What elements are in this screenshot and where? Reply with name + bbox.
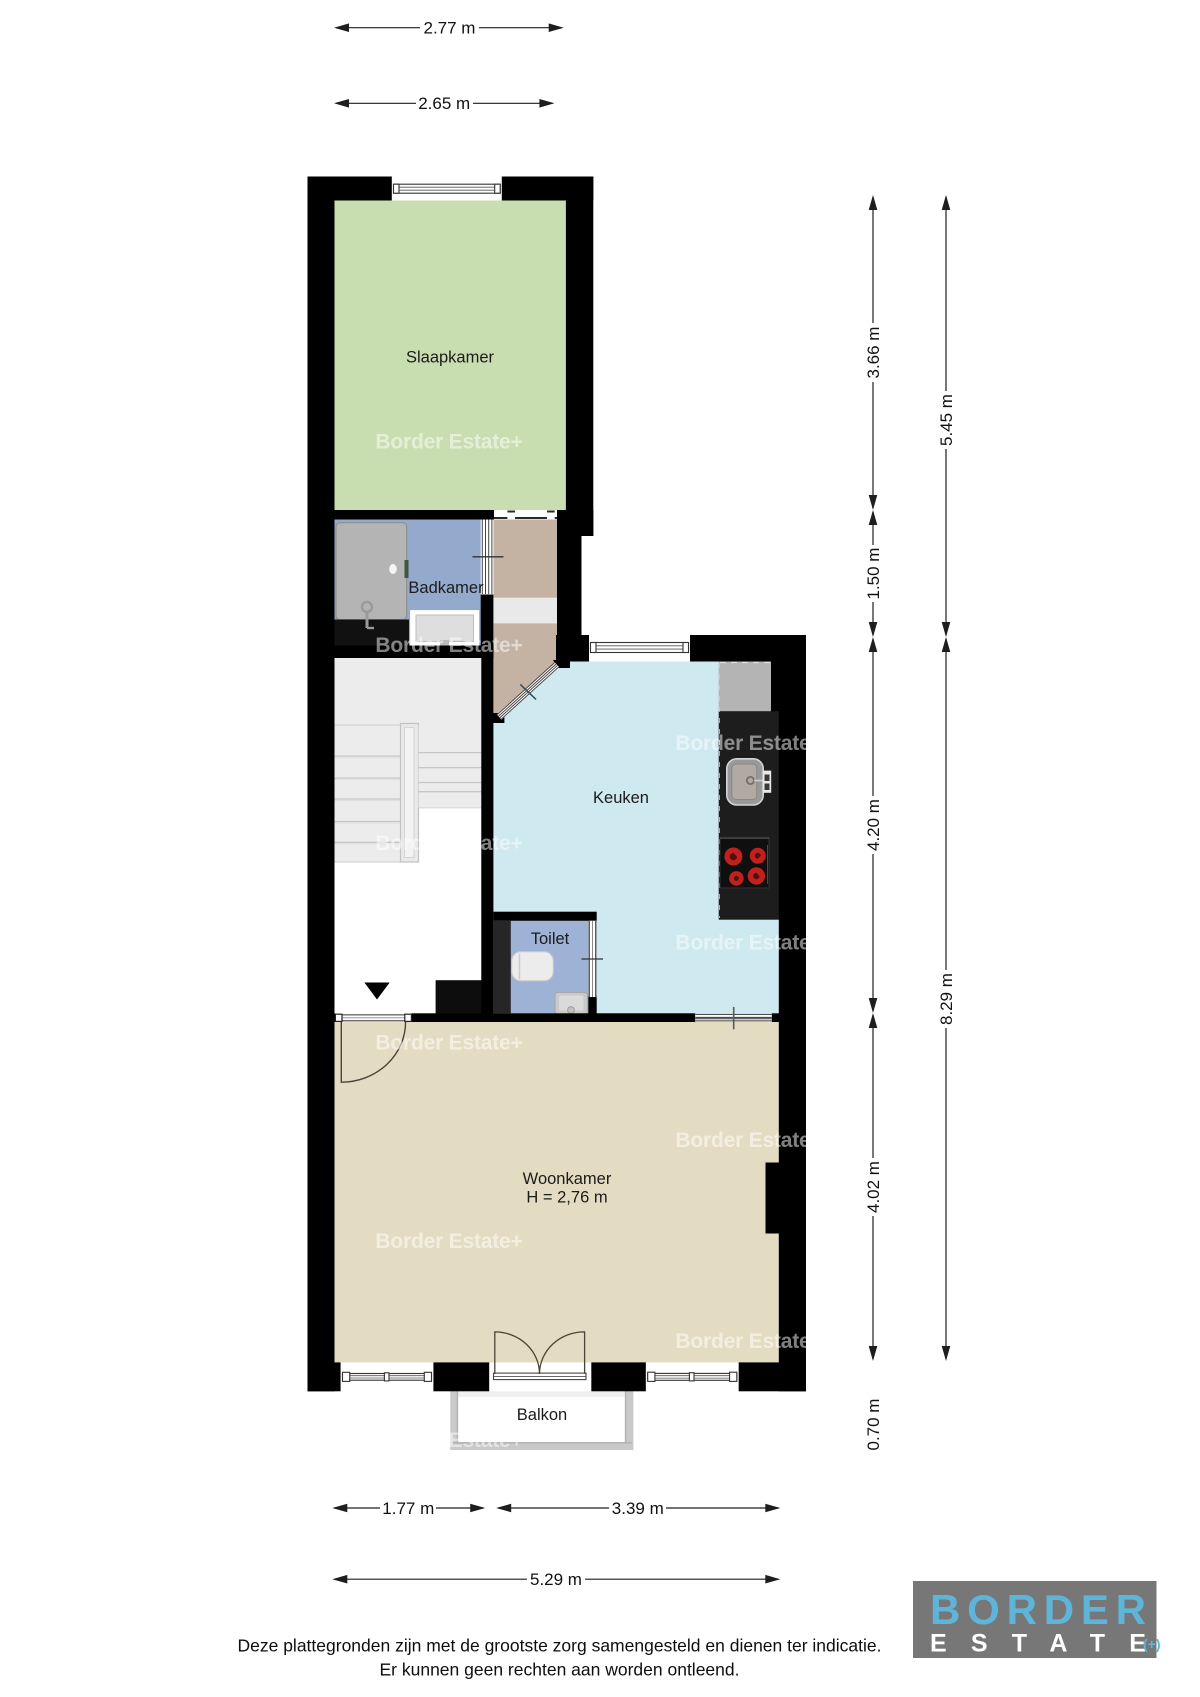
svg-text:1.77 m: 1.77 m [382, 1499, 434, 1518]
svg-text:Balkon: Balkon [517, 1406, 567, 1424]
svg-text:Er kunnen geen rechten aan wor: Er kunnen geen rechten aan worden ontlee… [380, 1660, 740, 1680]
svg-text:Badkamer: Badkamer [408, 579, 484, 597]
svg-text:Border Estate+: Border Estate+ [375, 1032, 522, 1055]
svg-text:Border Estate+: Border Estate+ [375, 832, 522, 855]
svg-text:Toilet: Toilet [531, 930, 570, 948]
svg-text:Border Estate+: Border Estate+ [675, 932, 822, 955]
svg-text:Slaapkamer: Slaapkamer [406, 349, 495, 367]
svg-text:Border Estate+: Border Estate+ [375, 1230, 522, 1253]
svg-text:4.02 m: 4.02 m [864, 1161, 883, 1213]
svg-text:4.20 m: 4.20 m [864, 799, 883, 851]
svg-text:ESTATE: ESTATE [930, 1630, 1170, 1658]
svg-text:0.70 m: 0.70 m [864, 1399, 883, 1451]
svg-text:Keuken: Keuken [593, 789, 649, 807]
svg-text:8.29 m: 8.29 m [937, 973, 956, 1025]
svg-text:Border Estate+: Border Estate+ [675, 1330, 822, 1353]
svg-text:Border Estate+: Border Estate+ [675, 732, 822, 755]
svg-text:Border Estate+: Border Estate+ [675, 1129, 822, 1152]
svg-text:Border Estate+: Border Estate+ [375, 431, 522, 454]
svg-text:1.50 m: 1.50 m [864, 548, 883, 600]
svg-text:(+): (+) [1143, 1636, 1161, 1652]
svg-text:Woonkamer: Woonkamer [523, 1170, 612, 1188]
svg-text:3.39 m: 3.39 m [612, 1499, 664, 1518]
svg-text:5.45 m: 5.45 m [937, 394, 956, 446]
svg-text:2.77 m: 2.77 m [424, 19, 476, 38]
svg-text:2.65 m: 2.65 m [418, 94, 470, 113]
svg-text:3.66 m: 3.66 m [864, 327, 883, 379]
svg-text:Border Estate+: Border Estate+ [375, 1429, 522, 1452]
svg-text:H = 2,76 m: H = 2,76 m [526, 1189, 607, 1207]
svg-text:Deze plattegronden zijn met de: Deze plattegronden zijn met de grootste … [237, 1636, 881, 1656]
svg-text:Border Estate+: Border Estate+ [375, 634, 522, 657]
svg-text:5.29 m: 5.29 m [530, 1570, 582, 1589]
svg-text:BORDER: BORDER [930, 1586, 1153, 1633]
